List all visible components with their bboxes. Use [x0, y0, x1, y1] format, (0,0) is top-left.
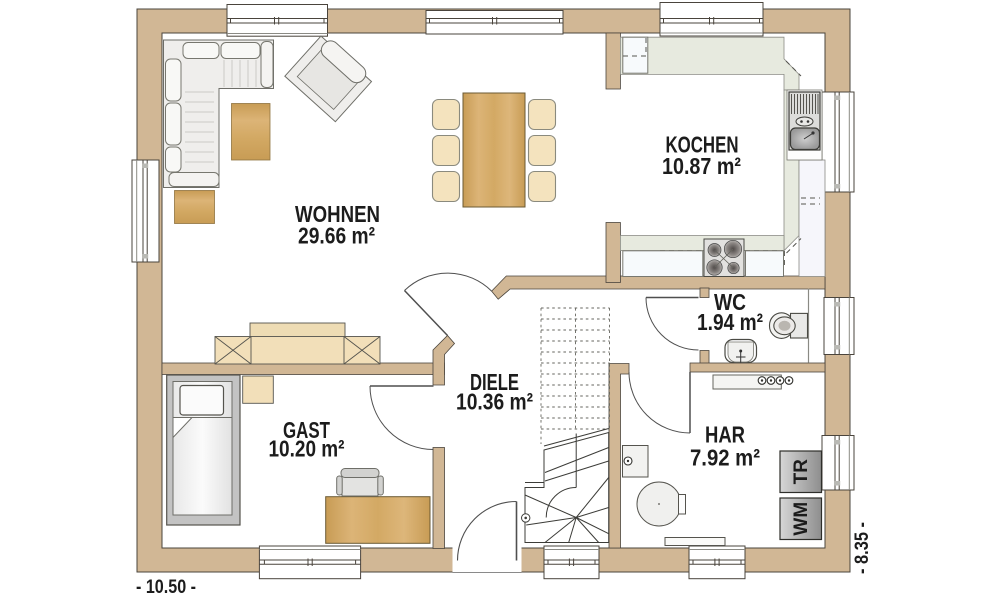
svg-text:7.92 m²: 7.92 m²	[690, 445, 760, 471]
svg-text:10.20 m²: 10.20 m²	[269, 436, 345, 462]
svg-text:- 10.50 -: - 10.50 -	[136, 577, 196, 598]
svg-text:10.87 m²: 10.87 m²	[662, 153, 741, 179]
svg-text:29.66 m²: 29.66 m²	[298, 223, 375, 249]
svg-text:1.94 m²: 1.94 m²	[697, 309, 763, 335]
svg-text:TR: TR	[791, 459, 812, 485]
svg-text:WM: WM	[791, 502, 812, 536]
svg-text:10.36 m²: 10.36 m²	[456, 389, 533, 415]
svg-text:- 8.35 -: - 8.35 -	[852, 522, 873, 574]
